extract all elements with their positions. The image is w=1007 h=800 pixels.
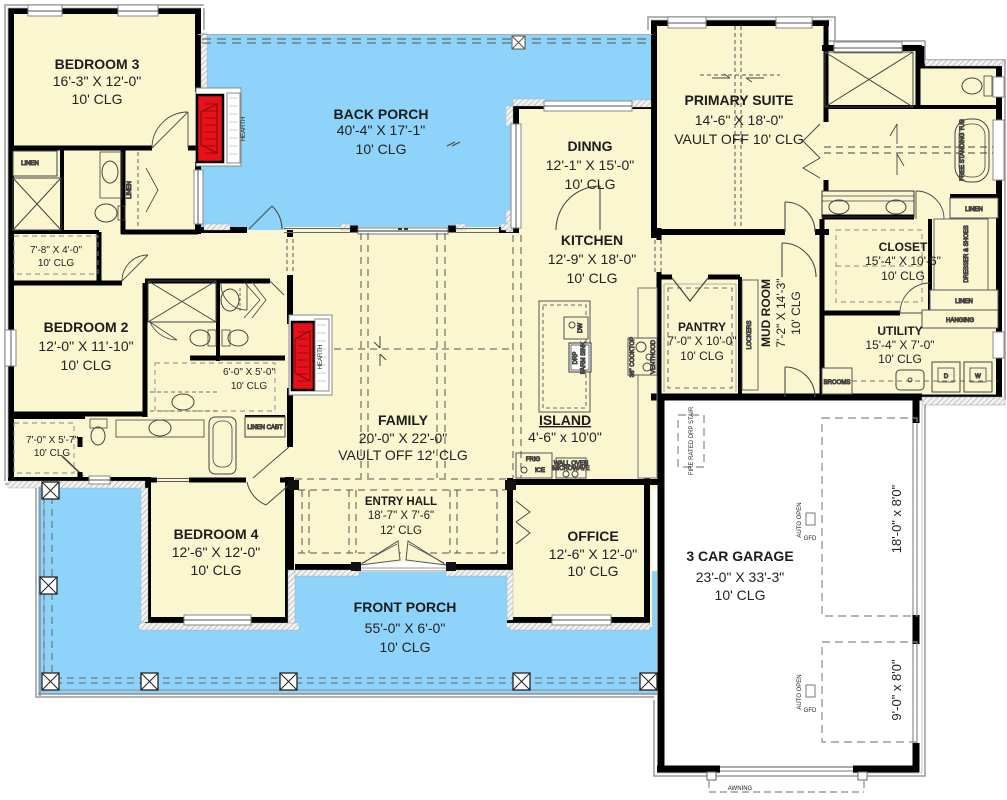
svg-text:14'-6" X 18'-0": 14'-6" X 18'-0" (695, 112, 783, 128)
svg-text:10' CLG: 10' CLG (680, 349, 724, 363)
svg-text:BROOMS: BROOMS (824, 380, 851, 386)
svg-text:ICE: ICE (535, 468, 545, 474)
svg-text:55'-0" X 6'-0": 55'-0" X 6'-0" (365, 620, 446, 636)
svg-text:12' CLG: 12' CLG (380, 525, 422, 537)
svg-text:MUD ROOM: MUD ROOM (759, 279, 773, 347)
svg-text:10' CLG: 10' CLG (72, 91, 123, 107)
svg-text:UTILITY: UTILITY (877, 324, 922, 338)
svg-text:LOCKERS: LOCKERS (747, 321, 753, 350)
svg-text:12'-6" X 12'-0": 12'-6" X 12'-0" (549, 546, 637, 562)
svg-text:DINNG: DINNG (567, 138, 612, 154)
svg-text:BACK PORCH: BACK PORCH (334, 106, 429, 122)
svg-text:36" COOKTOP: 36" COOKTOP (630, 337, 636, 377)
svg-text:BEDROOM 4: BEDROOM 4 (174, 526, 259, 542)
svg-text:HEARTH: HEARTH (241, 117, 247, 142)
svg-text:CLOSET: CLOSET (879, 240, 928, 254)
svg-text:3 CAR GARAGE: 3 CAR GARAGE (686, 548, 793, 564)
svg-text:VAULT OFF 10' CLG: VAULT OFF 10' CLG (674, 131, 804, 147)
svg-text:PRIMARY SUITE: PRIMARY SUITE (685, 92, 794, 108)
svg-text:FRONT PORCH: FRONT PORCH (354, 599, 457, 615)
svg-text:AWNING: AWNING (728, 786, 753, 792)
svg-text:10' CLG: 10' CLG (380, 639, 431, 655)
svg-text:16'-3" X 12'-0": 16'-3" X 12'-0" (53, 73, 141, 89)
svg-text:12'-9" X 18'-0": 12'-9" X 18'-0" (548, 251, 636, 267)
svg-text:OFFICE: OFFICE (567, 528, 618, 544)
svg-text:ENTRY HALL: ENTRY HALL (365, 496, 437, 508)
svg-text:HEARTH: HEARTH (318, 345, 324, 370)
svg-text:23'-0" X 33'-3": 23'-0" X 33'-3" (696, 569, 784, 585)
svg-text:FRIG: FRIG (526, 457, 541, 463)
svg-text:LINEN: LINEN (955, 299, 973, 305)
svg-text:D: D (944, 374, 949, 380)
svg-text:BEDROOM 2: BEDROOM 2 (44, 319, 129, 335)
svg-text:FAMILY: FAMILY (378, 412, 429, 428)
svg-text:10' CLG: 10' CLG (356, 141, 407, 157)
svg-text:10' CLG: 10' CLG (191, 562, 242, 578)
svg-text:15'-4" X 7'-0": 15'-4" X 7'-0" (865, 338, 934, 352)
svg-text:4'-6" x 10'0": 4'-6" x 10'0" (528, 429, 602, 445)
svg-text:DW: DW (578, 323, 584, 333)
svg-text:GFD: GFD (804, 708, 817, 714)
svg-text:10' CLG: 10' CLG (231, 381, 268, 392)
svg-text:MICROWAVE: MICROWAVE (553, 466, 590, 472)
svg-text:18'-7" X 7'-6": 18'-7" X 7'-6" (368, 510, 434, 522)
svg-text:12'-1" X 15'-0": 12'-1" X 15'-0" (546, 157, 634, 173)
svg-text:7'-8" X 4'-0": 7'-8" X 4'-0" (30, 245, 83, 256)
svg-text:7'-0" X 10'-0": 7'-0" X 10'-0" (667, 334, 736, 348)
svg-text:GFD: GFD (804, 536, 817, 542)
svg-text:10' CLG: 10' CLG (567, 270, 618, 286)
svg-text:FARM SINK: FARM SINK (581, 342, 587, 374)
svg-text:12'-6" X 12'-0": 12'-6" X 12'-0" (172, 544, 260, 560)
svg-text:7'-2" X 14'-3": 7'-2" X 14'-3" (774, 278, 788, 347)
svg-text:FIRE RATED DRP STAIR: FIRE RATED DRP STAIR (689, 406, 695, 475)
svg-text:40'-4" X 17'-1": 40'-4" X 17'-1" (337, 122, 425, 138)
svg-text:15'-4" X 10'-6": 15'-4" X 10'-6" (865, 254, 941, 268)
svg-text:10' CLG: 10' CLG (715, 587, 766, 603)
svg-text:10' CLG: 10' CLG (565, 176, 616, 192)
svg-text:LINEN CABT: LINEN CABT (247, 425, 283, 431)
svg-text:10' CLG: 10' CLG (789, 291, 803, 335)
svg-text:20'-0" X 22'-0": 20'-0" X 22'-0" (359, 430, 447, 446)
svg-text:10' CLG: 10' CLG (61, 357, 112, 373)
svg-text:HANGING: HANGING (946, 318, 974, 324)
svg-text:DRESSER & SHOES: DRESSER & SHOES (964, 225, 970, 282)
svg-text:10' CLG: 10' CLG (38, 258, 75, 269)
svg-text:FREE STANDING TUB: FREE STANDING TUB (960, 119, 966, 181)
svg-text:LINEN: LINEN (21, 161, 39, 167)
svg-text:LINEN: LINEN (127, 181, 133, 199)
svg-text:LINEN: LINEN (965, 207, 983, 213)
svg-text:6'-0" X 5'-0": 6'-0" X 5'-0" (223, 367, 276, 378)
svg-text:7'-0" X 5'-7": 7'-0" X 5'-7" (26, 435, 79, 446)
svg-text:10' CLG: 10' CLG (878, 352, 922, 366)
svg-text:PANTRY: PANTRY (678, 320, 726, 334)
svg-text:AUTO OPEN: AUTO OPEN (797, 502, 803, 537)
svg-text:18'-0" x 8'0": 18'-0" x 8'0" (889, 484, 904, 553)
svg-text:10' CLG: 10' CLG (34, 448, 71, 459)
svg-text:VAULT OFF 12' CLG: VAULT OFF 12' CLG (338, 447, 468, 463)
svg-text:DRP: DRP (573, 352, 579, 365)
svg-text:10' CLG: 10' CLG (568, 563, 619, 579)
svg-text:KITCHEN: KITCHEN (561, 232, 623, 248)
svg-text:AUTO OPEN: AUTO OPEN (797, 674, 803, 709)
svg-text:W: W (975, 374, 981, 380)
svg-text:10' CLG: 10' CLG (881, 269, 925, 283)
svg-text:ISLAND: ISLAND (539, 412, 591, 428)
svg-text:VENTHOOD: VENTHOOD (651, 339, 657, 374)
svg-text:9'-0" x 8'0": 9'-0" x 8'0" (889, 659, 904, 721)
svg-text:BEDROOM 3: BEDROOM 3 (55, 56, 140, 72)
svg-text:12'-0" X 11'-10": 12'-0" X 11'-10" (38, 338, 133, 354)
